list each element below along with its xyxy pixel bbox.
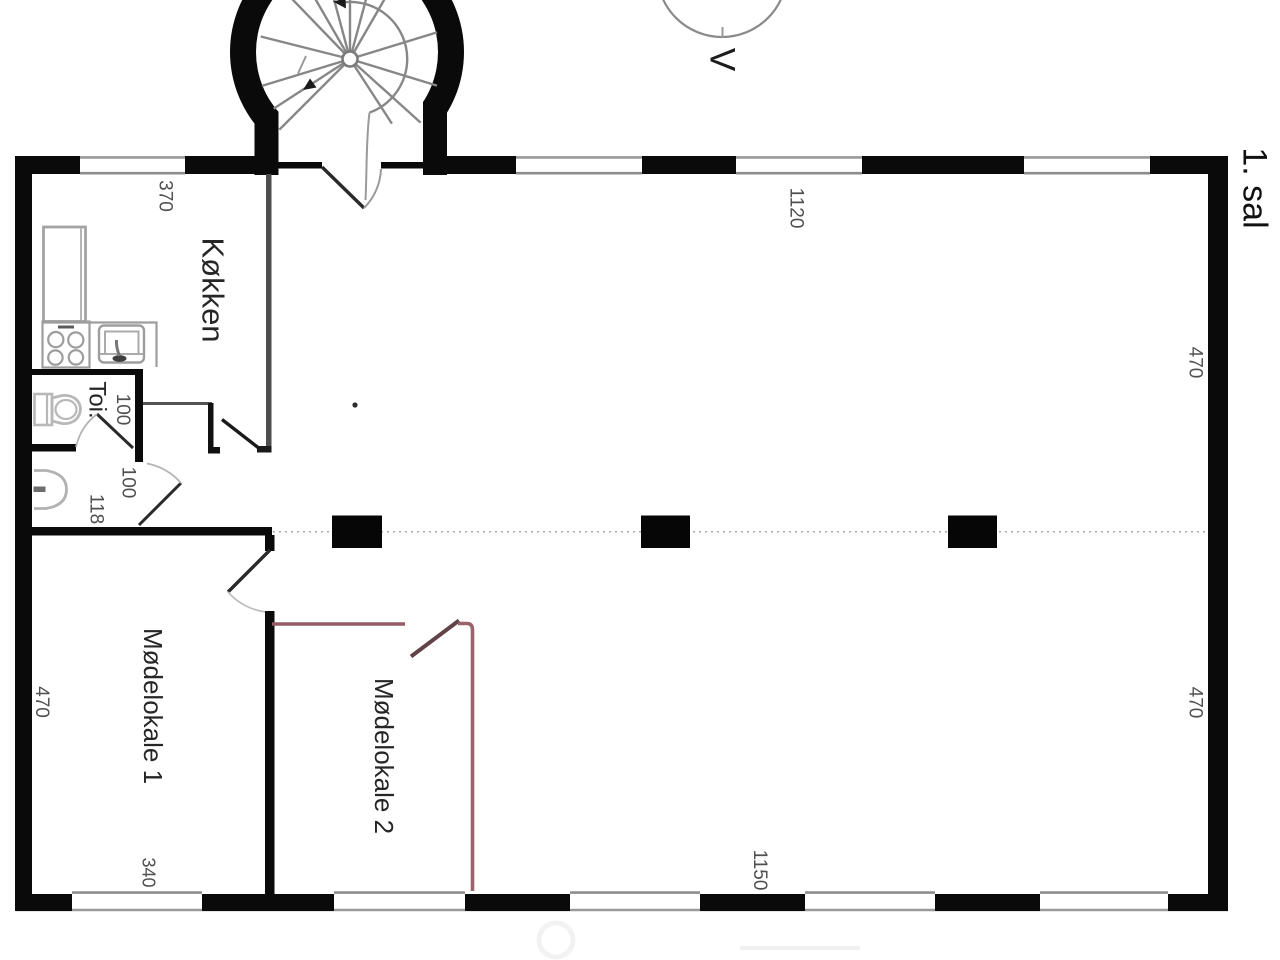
- svg-text:Køkken: Køkken: [195, 237, 230, 342]
- svg-text:470: 470: [31, 686, 52, 718]
- svg-text:Mødelokale 1: Mødelokale 1: [138, 628, 168, 784]
- svg-text:Toi.: Toi.: [83, 381, 110, 418]
- svg-text:V: V: [703, 48, 742, 72]
- svg-text:Mødelokale 2: Mødelokale 2: [369, 678, 399, 834]
- svg-text:100: 100: [112, 394, 133, 426]
- svg-text:370: 370: [155, 180, 176, 212]
- svg-text:470: 470: [1185, 687, 1206, 719]
- svg-text:1150: 1150: [749, 850, 770, 891]
- svg-text:1. sal: 1. sal: [1235, 147, 1273, 228]
- svg-text:100: 100: [118, 467, 139, 499]
- svg-text:118: 118: [86, 494, 107, 524]
- svg-text:1120: 1120: [786, 188, 807, 229]
- svg-text:340: 340: [138, 857, 158, 887]
- svg-text:470: 470: [1185, 347, 1206, 379]
